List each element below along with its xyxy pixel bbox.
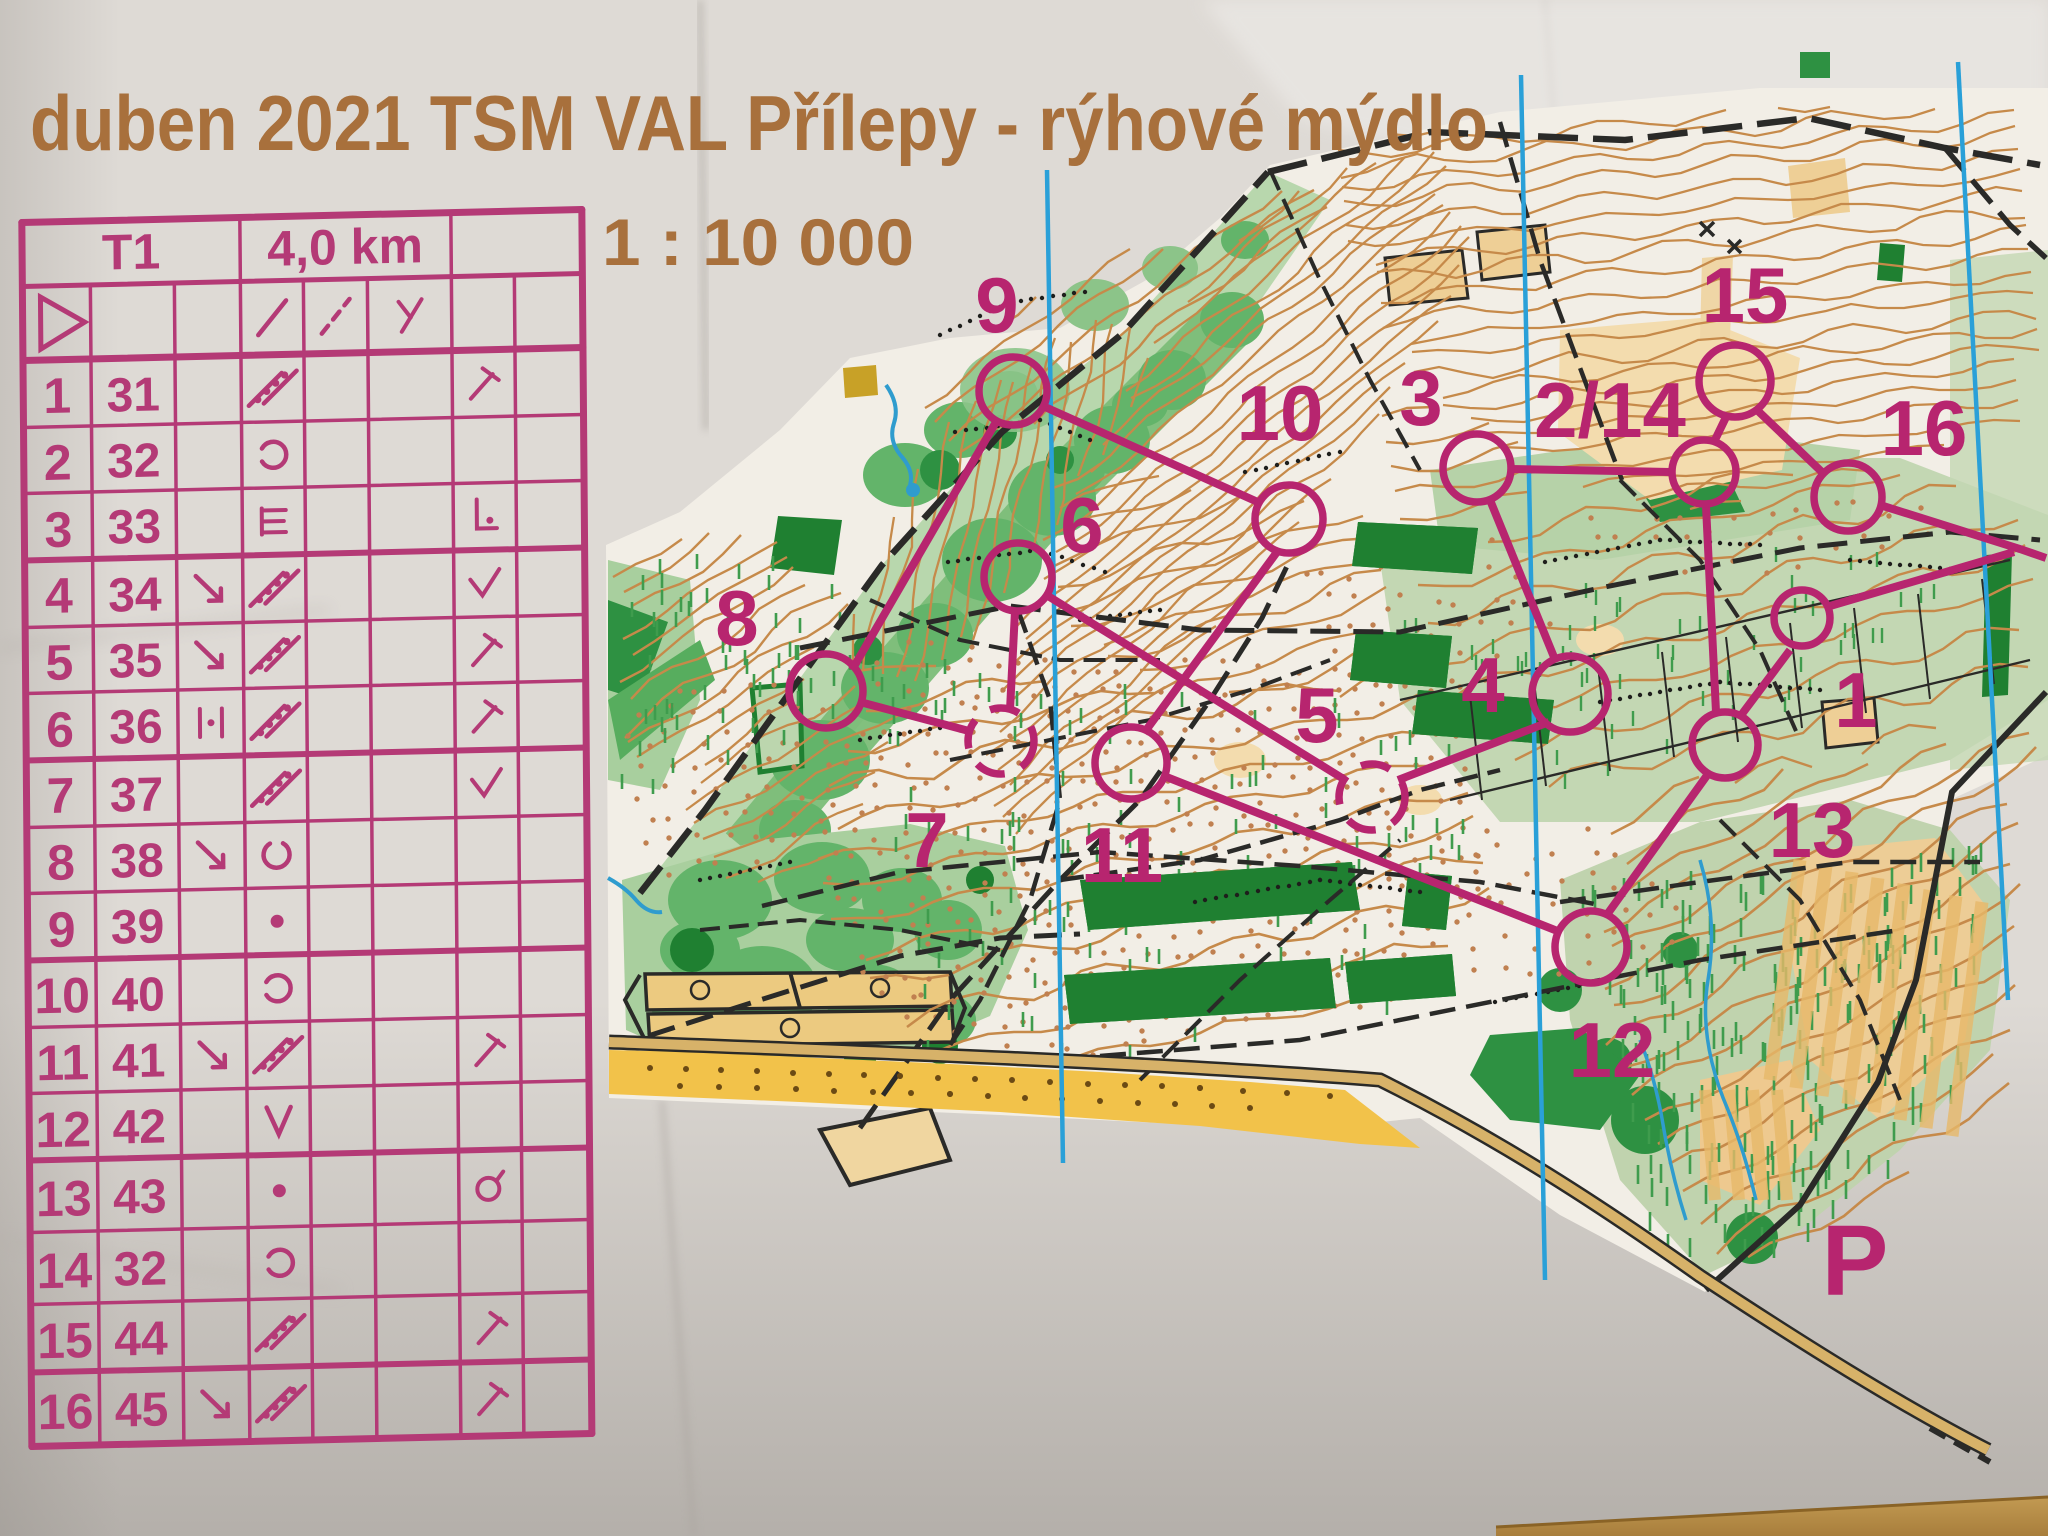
svg-text:12: 12 (1569, 1006, 1656, 1094)
svg-text:32: 32 (107, 434, 161, 488)
svg-text:36: 36 (109, 700, 163, 754)
svg-text:39: 39 (111, 900, 165, 954)
svg-text:1 : 10 000: 1 : 10 000 (602, 205, 914, 279)
svg-text:10: 10 (1237, 369, 1324, 457)
svg-text:1: 1 (1834, 656, 1877, 744)
svg-text:34: 34 (108, 568, 162, 622)
svg-text:33: 33 (107, 500, 161, 554)
svg-text:4,0 km: 4,0 km (267, 217, 423, 277)
svg-text:3: 3 (44, 501, 72, 558)
svg-text:14: 14 (36, 1242, 92, 1299)
svg-text:11: 11 (36, 1034, 89, 1091)
svg-text:9: 9 (975, 261, 1018, 349)
svg-text:9: 9 (48, 901, 76, 958)
svg-text:15: 15 (37, 1312, 93, 1369)
svg-text:duben 2021 TSM VAL Přílepy - r: duben 2021 TSM VAL Přílepy - rýhové mýdl… (30, 79, 1488, 167)
svg-text:8: 8 (715, 574, 758, 662)
svg-text:38: 38 (110, 834, 164, 888)
svg-text:35: 35 (109, 634, 163, 688)
svg-text:4: 4 (45, 567, 73, 624)
svg-text:15: 15 (1702, 251, 1789, 339)
svg-text:3: 3 (1399, 354, 1442, 442)
svg-text:16: 16 (38, 1383, 94, 1440)
svg-text:43: 43 (113, 1170, 167, 1224)
svg-text:2/14: 2/14 (1534, 366, 1686, 454)
svg-text:41: 41 (112, 1034, 166, 1088)
svg-text:13: 13 (36, 1170, 92, 1227)
svg-text:40: 40 (111, 968, 165, 1022)
svg-text:37: 37 (110, 768, 164, 822)
svg-text:32: 32 (114, 1242, 168, 1296)
svg-text:2: 2 (44, 434, 72, 491)
svg-text:44: 44 (114, 1312, 168, 1366)
svg-text:10: 10 (34, 967, 90, 1024)
svg-text:45: 45 (115, 1383, 169, 1437)
svg-text:P: P (1822, 1205, 1889, 1317)
svg-text:5: 5 (1295, 671, 1338, 759)
svg-text:31: 31 (106, 368, 160, 422)
svg-text:12: 12 (35, 1101, 91, 1158)
svg-text:6: 6 (46, 701, 74, 758)
svg-text:42: 42 (112, 1100, 166, 1154)
svg-text:16: 16 (1881, 384, 1968, 472)
svg-text:7: 7 (46, 767, 74, 824)
svg-text:5: 5 (45, 634, 73, 691)
svg-text:13: 13 (1769, 786, 1856, 874)
svg-text:6: 6 (1060, 481, 1103, 569)
svg-text:7: 7 (905, 796, 948, 884)
svg-text:4: 4 (1461, 641, 1504, 729)
svg-text:T1: T1 (102, 223, 161, 280)
svg-text:8: 8 (47, 834, 75, 891)
svg-text:11: 11 (1081, 811, 1163, 899)
svg-text:1: 1 (43, 367, 71, 424)
